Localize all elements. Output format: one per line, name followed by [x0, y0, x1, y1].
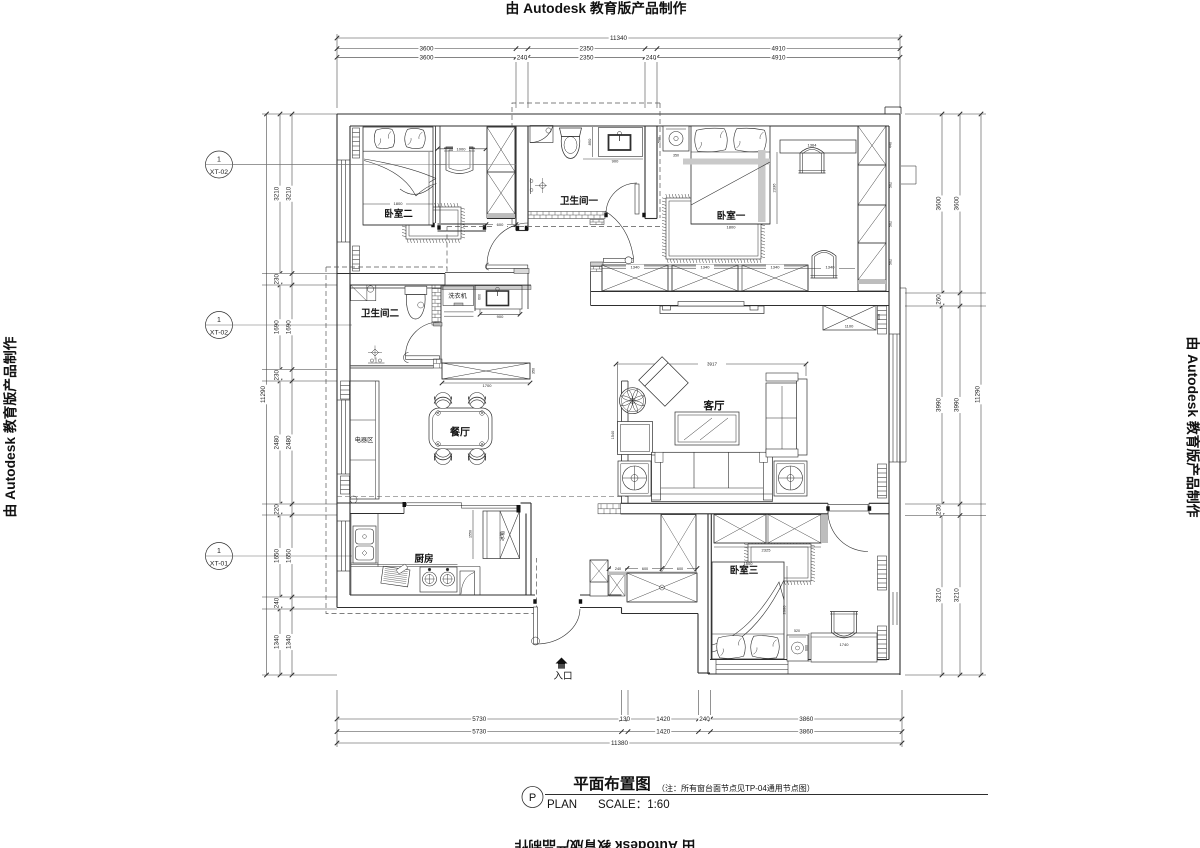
svg-text:3600: 3600: [936, 196, 943, 211]
svg-text:130: 130: [619, 716, 630, 723]
svg-text:3990: 3990: [954, 398, 961, 413]
svg-text:卫生间一: 卫生间一: [560, 195, 599, 207]
svg-text:1700: 1700: [483, 383, 493, 388]
svg-text:5730: 5730: [472, 716, 487, 723]
svg-text:1100: 1100: [845, 324, 854, 329]
svg-text:3990: 3990: [936, 398, 943, 413]
svg-text:客厅: 客厅: [703, 399, 725, 412]
svg-text:260: 260: [936, 294, 943, 305]
svg-text:562: 562: [889, 259, 893, 265]
svg-text:2350: 2350: [579, 46, 594, 53]
svg-text:240: 240: [615, 567, 621, 571]
svg-text:1340: 1340: [701, 264, 711, 269]
svg-text:2480: 2480: [286, 435, 293, 450]
svg-text:1740: 1740: [840, 642, 850, 647]
svg-text:1550: 1550: [469, 530, 473, 538]
svg-text:由 Autodesk 教育版产品制作: 由 Autodesk 教育版产品制作: [1185, 337, 1200, 518]
svg-text:冰箱: 冰箱: [499, 531, 506, 541]
svg-text:卧室一: 卧室一: [717, 210, 746, 222]
svg-text:由 Autodesk 教育版产品制作: 由 Autodesk 教育版产品制作: [514, 838, 695, 848]
svg-text:900: 900: [612, 159, 619, 164]
svg-text:562: 562: [889, 221, 893, 227]
svg-text:卧室三: 卧室三: [730, 565, 759, 577]
svg-text:850: 850: [587, 138, 592, 145]
svg-text:11340: 11340: [610, 35, 628, 42]
svg-text:XT-01: XT-01: [210, 561, 228, 568]
svg-text:1: 1: [217, 156, 221, 163]
svg-text:4910: 4910: [771, 54, 786, 61]
svg-text:3210: 3210: [954, 588, 961, 603]
svg-text:P: P: [529, 792, 536, 804]
svg-text:230: 230: [936, 504, 943, 515]
svg-text:3917: 3917: [707, 362, 718, 367]
svg-text:洗衣机: 洗衣机: [448, 292, 467, 300]
svg-text:2000: 2000: [782, 605, 787, 615]
svg-text:2350: 2350: [579, 54, 594, 61]
svg-text:1340: 1340: [274, 635, 281, 650]
svg-text:由 Autodesk 教育版产品制作: 由 Autodesk 教育版产品制作: [506, 0, 687, 16]
svg-text:厨房: 厨房: [414, 553, 433, 565]
svg-text:560: 560: [658, 137, 662, 143]
svg-text:520: 520: [794, 629, 800, 633]
svg-text:1500: 1500: [744, 561, 754, 566]
svg-text:卫生间二: 卫生间二: [361, 308, 400, 320]
svg-text:600: 600: [805, 645, 809, 651]
svg-text:XT-02: XT-02: [210, 169, 228, 176]
svg-text:由 Autodesk 教育版产品制作: 由 Autodesk 教育版产品制作: [2, 336, 18, 517]
svg-text:2325: 2325: [762, 548, 772, 553]
svg-text:240: 240: [274, 597, 281, 608]
svg-text:220: 220: [274, 504, 281, 515]
svg-text:3860: 3860: [799, 729, 814, 736]
svg-text:240: 240: [517, 54, 528, 61]
svg-text:240: 240: [646, 54, 657, 61]
svg-text:餐厅: 餐厅: [449, 426, 470, 439]
svg-text:1340: 1340: [286, 635, 293, 650]
svg-text:PLAN: PLAN: [547, 799, 577, 811]
svg-text:600: 600: [478, 294, 482, 300]
svg-text:5730: 5730: [472, 729, 487, 736]
svg-text:1: 1: [217, 548, 221, 555]
svg-text:XT-02: XT-02: [210, 330, 228, 337]
svg-text:3600: 3600: [419, 46, 434, 53]
svg-text:1690: 1690: [274, 320, 281, 335]
svg-text:3860: 3860: [799, 716, 814, 723]
svg-text:230: 230: [274, 274, 281, 285]
svg-text:3600: 3600: [954, 196, 961, 211]
svg-text:1: 1: [217, 317, 221, 324]
svg-text:11290: 11290: [975, 385, 982, 403]
svg-text:1340: 1340: [631, 264, 641, 269]
svg-text:平面布置图: 平面布置图: [573, 774, 651, 793]
svg-text:440: 440: [889, 142, 893, 148]
svg-text:1800: 1800: [727, 225, 737, 230]
svg-text:240: 240: [699, 716, 710, 723]
svg-text:900: 900: [497, 314, 504, 319]
svg-text:600: 600: [497, 222, 504, 227]
svg-text:1364: 1364: [808, 143, 818, 148]
svg-text:3210: 3210: [274, 186, 281, 201]
svg-text:2480: 2480: [274, 435, 281, 450]
svg-text:1690: 1690: [286, 320, 293, 335]
svg-text:1340: 1340: [771, 264, 781, 269]
svg-text:1540: 1540: [611, 431, 615, 439]
svg-text:350: 350: [673, 154, 679, 158]
svg-text:600: 600: [677, 567, 683, 571]
svg-text:电器区: 电器区: [355, 436, 374, 444]
svg-text:（注：所有窗台面节点见TP-04通用节点图）: （注：所有窗台面节点见TP-04通用节点图）: [657, 783, 815, 793]
svg-text:350: 350: [532, 368, 536, 374]
svg-text:600: 600: [642, 567, 648, 571]
svg-text:3210: 3210: [936, 588, 943, 603]
svg-text:600: 600: [877, 314, 881, 320]
svg-text:卧室二: 卧室二: [384, 208, 413, 220]
svg-text:3210: 3210: [286, 186, 293, 201]
svg-text:562: 562: [889, 182, 893, 188]
svg-text:2336: 2336: [772, 183, 777, 193]
svg-text:11380: 11380: [611, 740, 629, 747]
svg-text:1420: 1420: [656, 729, 671, 736]
svg-text:11290: 11290: [260, 385, 267, 403]
svg-text:1800: 1800: [394, 201, 404, 206]
svg-text:4910: 4910: [771, 46, 786, 53]
svg-text:SCALE：1:60: SCALE：1:60: [598, 799, 670, 811]
svg-text:1420: 1420: [656, 716, 671, 723]
svg-text:3600: 3600: [419, 54, 434, 61]
svg-text:230: 230: [274, 370, 281, 381]
svg-text:入口: 入口: [553, 671, 572, 682]
svg-text:1000: 1000: [457, 146, 467, 151]
